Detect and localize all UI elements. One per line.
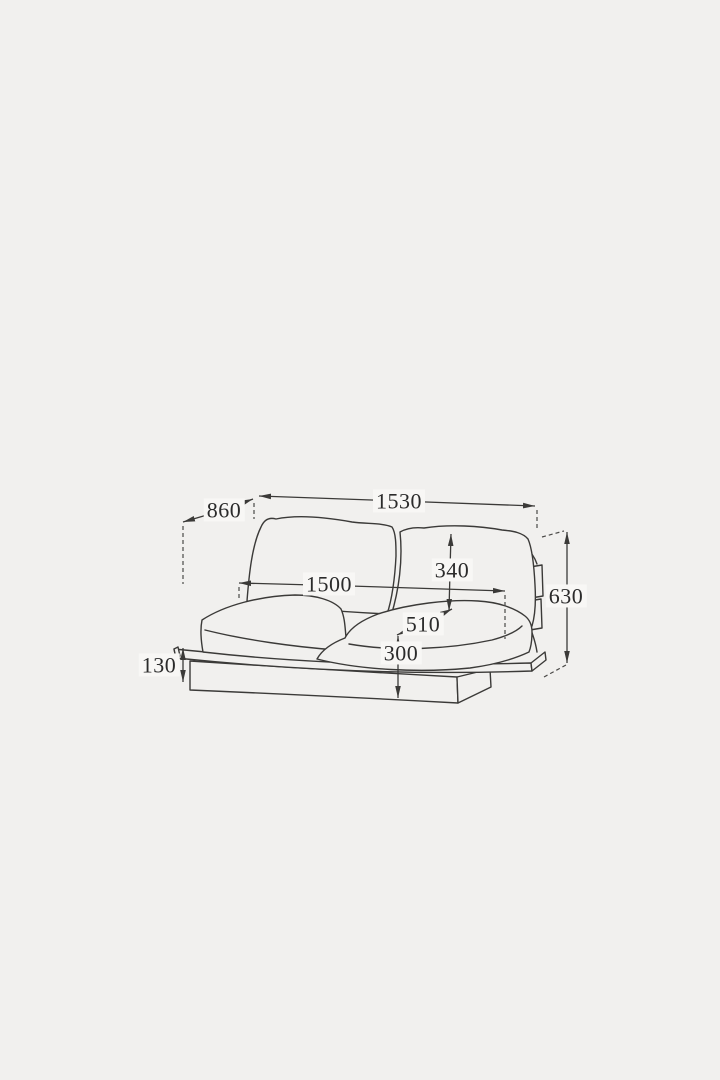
dim-label-overall-back-height: 630 xyxy=(546,584,587,607)
base-slab-right-face xyxy=(531,652,546,671)
dim-label-overall-width: 1530 xyxy=(373,489,425,512)
ext-height-top xyxy=(542,531,564,537)
dim-label-seat-depth: 510 xyxy=(403,612,444,635)
sofa-drawing xyxy=(174,517,546,703)
dim-label-seat-width: 1500 xyxy=(303,572,355,595)
base-plinth-right-face xyxy=(457,669,491,703)
sofa-dimension-diagram-page: 1530 860 1500 340 510 300 630 130 xyxy=(0,0,720,1080)
ext-height-bottom xyxy=(544,665,566,677)
dim-label-overall-depth: 860 xyxy=(204,498,245,521)
dim-label-base-height: 130 xyxy=(139,653,180,676)
dim-label-back-cushion-height: 340 xyxy=(432,558,473,581)
sofa-line-drawing xyxy=(0,0,720,1080)
dim-label-seat-height: 300 xyxy=(381,641,422,664)
